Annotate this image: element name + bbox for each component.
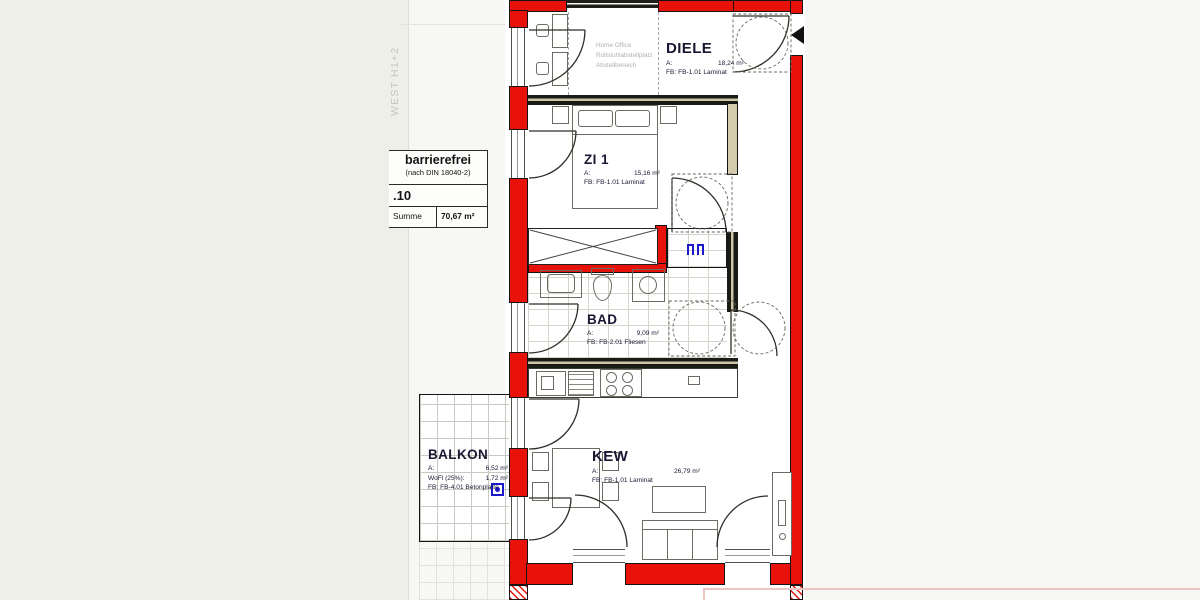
dishwasher [568, 371, 594, 396]
orientation-label: WEST H1+2 [389, 16, 401, 116]
room-name: DIELE [666, 40, 744, 57]
zone-boundary-dashed [658, 12, 659, 95]
room-name: ZI 1 [584, 152, 660, 167]
unit-number: .10 [389, 185, 487, 207]
tv-sideboard-knob [779, 533, 786, 540]
area-value: 15,16 m² [634, 170, 660, 177]
dining-chair [602, 482, 619, 501]
nightstand [660, 106, 677, 124]
top-window-band [567, 0, 658, 8]
wall-segment [509, 352, 528, 398]
floor-spec: FB: FB-1.01 Laminat [584, 179, 660, 186]
washing-machine-door [639, 276, 657, 294]
sink-basin [547, 274, 575, 293]
wall-segment [509, 86, 528, 130]
nightstand [552, 106, 569, 124]
balcony-door-opening-1 [511, 398, 525, 448]
entry-arrow-icon [791, 26, 804, 44]
wall-segment [509, 10, 528, 28]
room-label-balkon: BALKON A:6,52 m² WoFl (25%):1,72 m² FB: … [428, 447, 508, 491]
title-block: barrierefrei (nach DIN 18040-2) .10 Summ… [389, 150, 488, 228]
room-label-bad: BAD A:9,09 m² FB: FB-2.01 Fliesen [587, 312, 659, 346]
toilet-tank [591, 268, 614, 275]
horizontal-guide-line [400, 24, 510, 25]
office-chair [536, 62, 549, 75]
wardrobe-built-in [528, 228, 658, 265]
sofa [642, 520, 718, 560]
tv-sideboard-detail [778, 500, 786, 526]
wall-segment [625, 563, 725, 585]
diele-zone-note: Home Office Rollstuhlabstellplatz Abstel… [596, 41, 652, 71]
balcony-door-opening-2 [511, 497, 525, 539]
floor-spec: FB: FB-4.01 Betonplatte [428, 484, 508, 491]
sum-label: Summe [389, 207, 437, 227]
room-name: BALKON [428, 447, 508, 462]
zone-note-line: Abstellbereich [596, 61, 652, 71]
wall-segment [509, 448, 528, 497]
wall-hatch-stub [509, 585, 528, 600]
floorplan-canvas: WEST H1+2 barrierefrei (nach DIN 18040-2… [0, 0, 1200, 600]
door-opening-bad [511, 303, 525, 352]
burner [606, 372, 617, 383]
sofa-back-line [642, 529, 718, 530]
area-label: A: [584, 170, 590, 177]
wall-diele-zi1 [528, 95, 738, 105]
zone-note-line: Home Office [596, 41, 652, 51]
burner [606, 385, 617, 396]
zone-note-line: Rollstuhlabstellplatz [596, 51, 652, 61]
burner [622, 385, 633, 396]
left-margin-strip [0, 0, 408, 600]
office-chair [536, 24, 549, 37]
dining-chair [532, 452, 549, 471]
area-value: 26,79 m² [674, 468, 700, 475]
sum-value: 70,67 m² [437, 207, 487, 227]
door-opening-zi1 [511, 130, 525, 178]
wall-bad-kew [528, 358, 738, 368]
dining-chair [532, 482, 549, 501]
area-value: 18,24 m² [718, 60, 744, 67]
wall-segment [658, 0, 734, 12]
bottom-window-2 [725, 549, 770, 563]
pink-guide-line [703, 588, 1200, 590]
wall-segment [509, 178, 528, 303]
certification-label: barrierefrei [389, 153, 487, 167]
pink-guide-line [703, 588, 705, 600]
floor-spec: FB: FB-2.01 Fliesen [587, 339, 659, 346]
sofa-cushion-divider [667, 529, 668, 560]
bottom-window-1 [573, 549, 625, 563]
service-connection-icon [697, 244, 704, 255]
area-label: A: [587, 330, 593, 337]
burner [622, 372, 633, 383]
wall-bad-corridor [727, 232, 738, 312]
pillow [578, 110, 613, 127]
coffee-table [652, 486, 706, 513]
kitchen-sink-small [688, 376, 700, 385]
certification-note: (nach DIN 18040-2) [389, 168, 487, 177]
pillow [615, 110, 650, 127]
title-block-certification-row: barrierefrei (nach DIN 18040-2) [389, 151, 487, 185]
room-name: BAD [587, 312, 659, 327]
room-label-diele: DIELE A:18,24 m² FB: FB-1.01 Laminat [666, 40, 744, 76]
wall-zi1-corridor [727, 103, 738, 175]
wall-segment [790, 0, 803, 14]
balcony-continuation-faint [419, 543, 509, 600]
wofl-label: WoFl (25%): [428, 475, 465, 482]
service-connection-icon [687, 244, 694, 255]
room-label-zi1: ZI 1 A:15,16 m² FB: FB-1.01 Laminat [584, 152, 660, 186]
office-desk [552, 52, 568, 86]
door-opening-diele [511, 28, 525, 86]
area-value: 6,52 m² [486, 465, 508, 472]
area-value: 9,09 m² [637, 330, 659, 337]
kitchen-appliance-inner [541, 376, 554, 390]
wofl-value: 1,72 m² [486, 475, 508, 482]
title-block-sum-row: Summe 70,67 m² [389, 207, 487, 227]
floor-spec: FB: FB-1.01 Laminat [666, 69, 744, 76]
office-desk [552, 14, 568, 48]
room-name: KEW [592, 448, 700, 465]
area-label: A: [592, 468, 598, 475]
area-label: A: [666, 60, 672, 67]
bed-fold-line [572, 134, 658, 135]
sofa-cushion-divider [692, 529, 693, 560]
vertical-guide-line [408, 0, 409, 600]
floor-spec: FB: FB-1.01 Laminat [592, 477, 700, 484]
room-label-kew: KEW A:26,79 m² FB: FB-1.01 Laminat [592, 448, 700, 484]
zone-boundary-dashed [568, 12, 569, 95]
area-label: A: [428, 465, 434, 472]
wall-segment [526, 563, 573, 585]
